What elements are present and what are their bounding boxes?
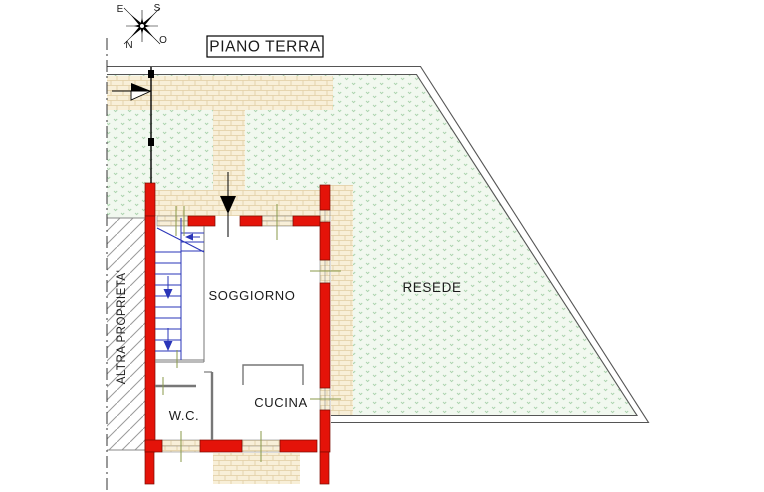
compass-center-dot [140, 24, 144, 28]
wall-bottom-seg2 [200, 440, 242, 452]
title-box: PIANO TERRA [207, 36, 323, 57]
floor-plan-svg: E S N O PIANO TERRA SOGGIORNO CUCINA W.C… [0, 0, 764, 492]
label-altra-proprieta: ALTRA PROPRIETA' [116, 270, 128, 385]
survey-marker-node-top [148, 70, 154, 78]
wall-right-seg3 [320, 283, 330, 388]
label-resede: RESEDE [402, 280, 461, 295]
compass-label-north: N [125, 40, 132, 51]
wall-top-seg3 [293, 216, 320, 226]
page-title: PIANO TERRA [209, 39, 320, 56]
label-cucina: CUCINA [254, 395, 307, 410]
wall-right-seg2 [320, 222, 330, 260]
wall-bottom-seg1 [145, 440, 162, 452]
compass-label-east: E [117, 4, 124, 15]
paved-area-right-strip [330, 185, 353, 416]
compass-rose: E S N O [117, 3, 167, 51]
wall-right-seg1 [320, 185, 330, 210]
paved-area-rear-patio [213, 453, 300, 484]
paved-area-entrance-path [213, 110, 245, 192]
wall-right-seg4 [320, 410, 330, 452]
wall-pilaster-bottom-left [145, 452, 154, 484]
compass-label-south: S [154, 3, 161, 14]
wall-pilaster-bottom-right [320, 452, 329, 484]
wall-left [145, 216, 155, 452]
survey-marker-node-bottom [148, 138, 154, 146]
label-wc: W.C. [169, 408, 200, 423]
paved-area-front-strip [147, 190, 331, 216]
wall-pilaster-top-left [145, 183, 155, 216]
wall-bottom-seg3 [280, 440, 317, 452]
wall-top-seg1 [188, 216, 215, 226]
label-soggiorno: SOGGIORNO [208, 288, 295, 303]
compass-label-west: O [159, 35, 167, 46]
wall-top-seg2 [240, 216, 262, 226]
floor-plan-page: E S N O PIANO TERRA SOGGIORNO CUCINA W.C… [0, 0, 764, 492]
